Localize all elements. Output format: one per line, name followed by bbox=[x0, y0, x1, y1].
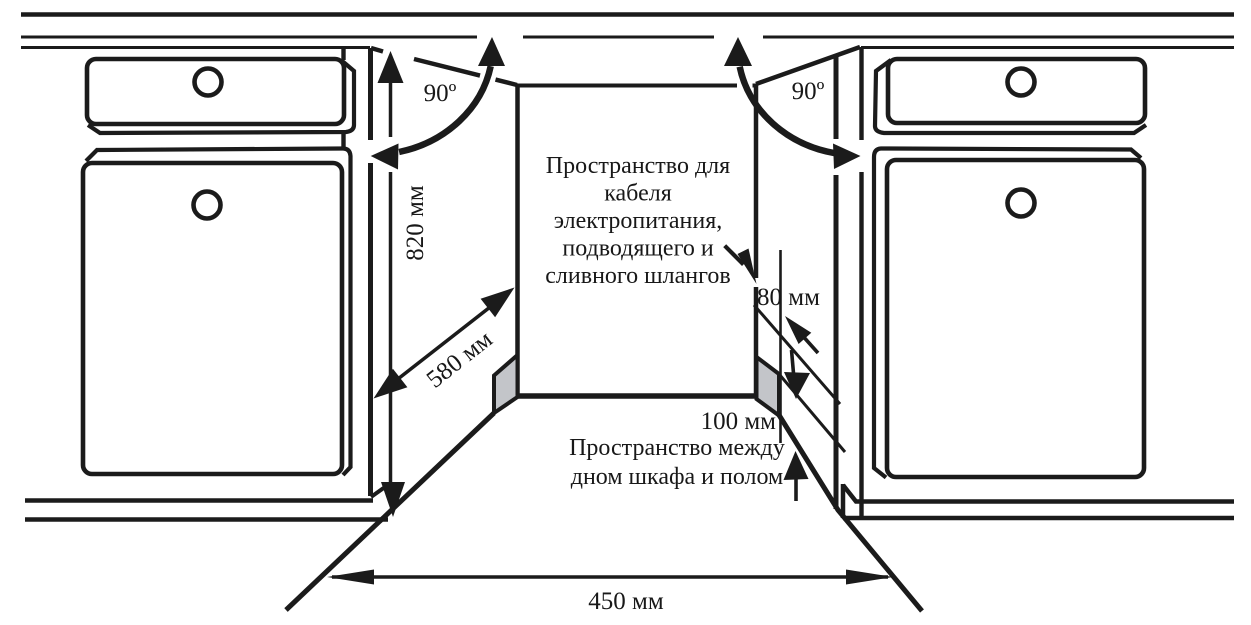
svg-text:90º: 90º bbox=[424, 80, 457, 107]
svg-text:Пространство между: Пространство между bbox=[569, 435, 785, 461]
svg-text:100 мм: 100 мм bbox=[701, 408, 777, 435]
svg-text:80 мм: 80 мм bbox=[757, 284, 820, 311]
svg-text:электропитания,: электропитания, bbox=[554, 208, 722, 234]
svg-text:820 мм: 820 мм bbox=[402, 185, 429, 261]
svg-text:450 мм: 450 мм bbox=[588, 588, 664, 615]
svg-text:кабеля: кабеля bbox=[604, 181, 672, 207]
svg-text:580 мм: 580 мм bbox=[422, 326, 498, 394]
svg-text:90º: 90º bbox=[792, 78, 825, 105]
svg-text:сливного шлангов: сливного шлангов bbox=[545, 263, 730, 289]
svg-text:Пространство для: Пространство для bbox=[546, 153, 730, 179]
svg-text:дном шкафа и полом: дном шкафа и полом bbox=[571, 464, 784, 490]
svg-text:подводящего и: подводящего и bbox=[562, 236, 713, 262]
